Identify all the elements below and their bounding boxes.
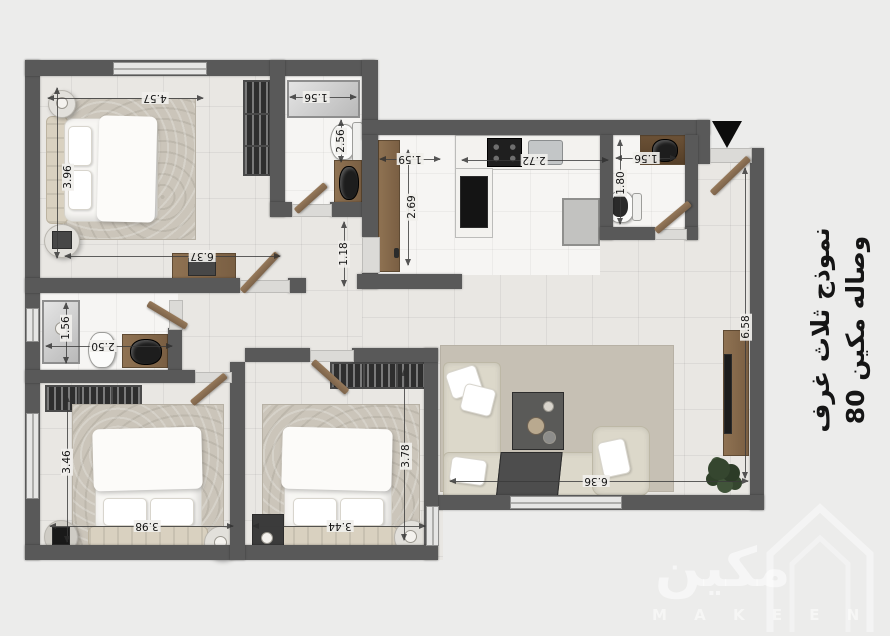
wall-bedroom3-top-left: [245, 348, 310, 362]
doorway-kitchen: [362, 237, 380, 273]
kitchen-fridge: [562, 198, 600, 246]
dim-bedroom1-width: 4.57: [141, 92, 168, 104]
plan-title: نموذج ثلاث غرف وصاله مكين 80: [803, 165, 873, 495]
dim-line: [57, 88, 58, 258]
bathroom2-sink: [130, 339, 162, 365]
wc-toilet-tank: [632, 193, 642, 221]
wall-bath2-bottom: [25, 370, 195, 383]
plan-title-line1: نموذج ثلاث غرف: [803, 165, 838, 495]
dim-kitchen-width: 2.72: [520, 154, 547, 166]
bedroom3-nightstand-lamp: [261, 532, 273, 544]
bedroom1-window: [113, 62, 207, 75]
living-coffee-table: [512, 392, 564, 450]
wall-bath1-bottom-right: [330, 202, 364, 217]
wall-kitchen-bottom: [357, 274, 462, 289]
wall-bedroom3-top-right: [352, 348, 438, 362]
dim-bedroom2-height: 3.46: [61, 448, 73, 475]
dim-bedroom2-width: 3.98: [133, 520, 160, 532]
plant-icon: [708, 458, 730, 480]
bathroom1-sink: [339, 166, 359, 200]
wall-right-exterior: [750, 148, 764, 510]
bedroom2-duvet: [92, 427, 203, 492]
dim-corridor-width: 1.18: [338, 240, 350, 267]
bedroom1-duvet: [97, 115, 158, 222]
plan-title-line2: وصاله مكين 80: [838, 165, 873, 495]
dim-wc-width: 1.56: [632, 152, 659, 164]
dim-bedroom3-height: 3.78: [400, 442, 412, 469]
dim-hall-length: 6.37: [188, 250, 215, 262]
dim-line: [48, 98, 203, 99]
dim-kitchen-counter: 1.59: [396, 153, 423, 165]
bedroom3-window: [426, 506, 439, 546]
dim-bath2-width: 2.50: [89, 340, 116, 352]
wall-kitchen-left-upper: [362, 135, 378, 237]
bedroom2-window: [26, 413, 39, 499]
dim-line: [65, 256, 280, 257]
wall-wc-right: [685, 135, 698, 240]
dim-wc-depth: 1.80: [615, 169, 627, 196]
bedroom3-duvet: [281, 427, 393, 492]
dim-bath2-height: 1.56: [60, 314, 72, 341]
bedroom1-pillow: [68, 126, 92, 166]
tv-screen: [724, 354, 732, 434]
kitchen-oven: [460, 176, 488, 228]
wall-top-mid-exterior: [362, 120, 710, 135]
kitchen-door-handle: [394, 248, 399, 258]
kitchen-stove: [487, 138, 522, 167]
wall-bedroom1-bottom-stub: [288, 278, 306, 293]
dim-living-width: 6.36: [582, 475, 609, 487]
watermark-house-icon: [762, 498, 890, 636]
bedroom1-table-object: [52, 231, 72, 249]
wall-wc-left: [600, 135, 613, 240]
wall-bath2-right: [168, 328, 182, 372]
dim-bedroom1-height: 3.96: [62, 163, 74, 190]
floorplan-page: { "plan": { "entry_marker": "entrance-ar…: [0, 0, 890, 636]
living-window: [510, 496, 622, 509]
bathroom2-window: [26, 308, 39, 342]
wall-wc-bottom-left: [600, 227, 655, 240]
wall-bath1-bottom-left: [270, 202, 292, 217]
dim-living-height: 6.58: [740, 313, 752, 340]
dim-bath1-shower-width: 1.56: [302, 91, 329, 103]
entrance-arrow-icon: [712, 121, 742, 148]
dim-bath1-depth: 2.56: [335, 127, 347, 154]
wall-bedroom1-bottom: [25, 278, 240, 293]
bedroom1-wardrobe: [243, 80, 271, 176]
dim-bedroom3-width: 3.44: [326, 520, 353, 532]
wall-entry-stub: [697, 120, 710, 164]
wall-bedroom-divider: [230, 362, 245, 560]
dim-kitchen-depth: 2.69: [406, 193, 418, 220]
wall-bedroom1-right: [270, 60, 285, 217]
